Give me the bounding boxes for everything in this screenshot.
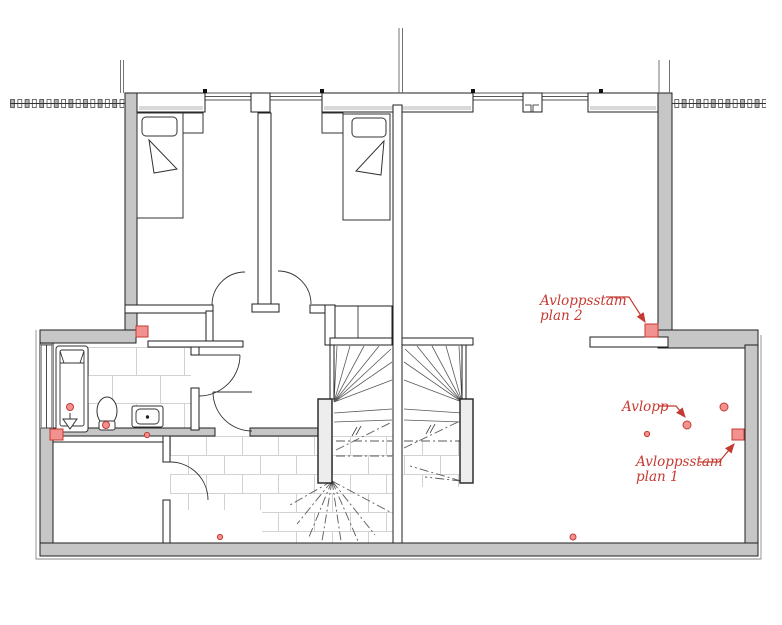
wall-extension-top <box>40 330 136 343</box>
wall-stair-top-left <box>330 338 392 345</box>
wall-bathroom-right-lower <box>191 388 199 430</box>
label-avloppsstam-plan1-line2: plan 1 <box>636 469 679 485</box>
upper-storey-projection-lines <box>121 28 670 93</box>
drain-icon-lower-room <box>217 534 222 539</box>
sewer-stack-icon-plan2 <box>645 324 658 337</box>
drain-icon-avlopp <box>683 421 691 429</box>
tiled-floors <box>88 347 465 543</box>
wall-right-lower <box>745 345 758 556</box>
nightstand-1 <box>183 113 203 133</box>
window-left-wall <box>40 345 53 428</box>
stair-post-right <box>460 399 473 483</box>
wall-bottom <box>40 543 758 556</box>
break-symbol-right <box>426 424 435 434</box>
wall-storage-right-lower <box>163 500 170 543</box>
label-avlopp: Avlopp <box>620 399 669 415</box>
sink-drain-dot <box>146 415 149 418</box>
label-avloppsstam-plan1-line1: Avloppsstam <box>634 454 723 470</box>
wall-bedroom-divider <box>258 113 271 305</box>
top-wall-pier-1 <box>251 93 270 112</box>
floorplan-page: Avloppsstam plan 2 Avlopp Avloppsstam pl… <box>0 0 782 625</box>
fence-right <box>672 99 766 108</box>
stair-right-tile-floor <box>403 440 465 487</box>
door-bathroom-arc <box>199 355 240 396</box>
stair-stringer-right <box>462 345 466 399</box>
sewer-stack-icon-plan1 <box>732 429 744 440</box>
bedroom2-furniture <box>322 113 390 220</box>
wall-hall-left <box>125 305 213 313</box>
wall-divider-foot <box>252 304 279 312</box>
wall-storage-right-upper <box>163 436 170 462</box>
bedroom1-furniture <box>137 113 203 218</box>
drain-icon-bathtub <box>67 404 74 411</box>
wall-hall-left-return <box>206 311 213 341</box>
wall-right-upper <box>658 93 672 335</box>
bed-2-pillow <box>352 118 386 137</box>
wall-hall-bottom <box>250 428 318 436</box>
fence-left <box>10 99 125 108</box>
door-lower-room-arc <box>213 392 252 431</box>
label-avloppsstam-plan2-line1: Avloppsstam <box>538 293 627 309</box>
wall-right-room-stub <box>590 337 668 347</box>
annotations: Avloppsstam plan 2 Avlopp Avloppsstam pl… <box>538 293 723 485</box>
nightstand-2 <box>322 113 343 133</box>
stair-stringer-left <box>330 345 334 399</box>
wall-central <box>393 105 402 543</box>
stair-post-left <box>318 399 332 483</box>
wall-stair-top-right <box>402 338 473 345</box>
break-symbol-left <box>352 426 361 436</box>
drain-icon-right-room-bottom <box>570 534 576 540</box>
bed-1-pillow <box>142 117 177 136</box>
sewer-stack-icon-bathroom-top <box>136 326 148 337</box>
floorplan-drawing: Avloppsstam plan 2 Avlopp Avloppsstam pl… <box>0 0 782 625</box>
wall-left-upper <box>125 93 137 332</box>
wall-right-jog <box>658 330 758 348</box>
door-bedroom2-arc <box>278 271 311 304</box>
drain-icon-toilet <box>103 422 110 429</box>
drain-icon-right-wall <box>720 403 728 411</box>
drain-icon-right-room-small <box>644 431 649 436</box>
sewer-stack-icon-bathroom-left <box>50 429 63 440</box>
lower-room-tile-floor-left <box>170 436 262 510</box>
label-avloppsstam-plan2-line2: plan 2 <box>540 308 583 324</box>
drain-icon-wall <box>144 432 149 437</box>
door-bedroom1-arc <box>212 272 245 305</box>
wall-bathroom-top <box>148 341 243 347</box>
top-wall-pier-2 <box>523 93 542 112</box>
landing-box <box>335 306 392 338</box>
